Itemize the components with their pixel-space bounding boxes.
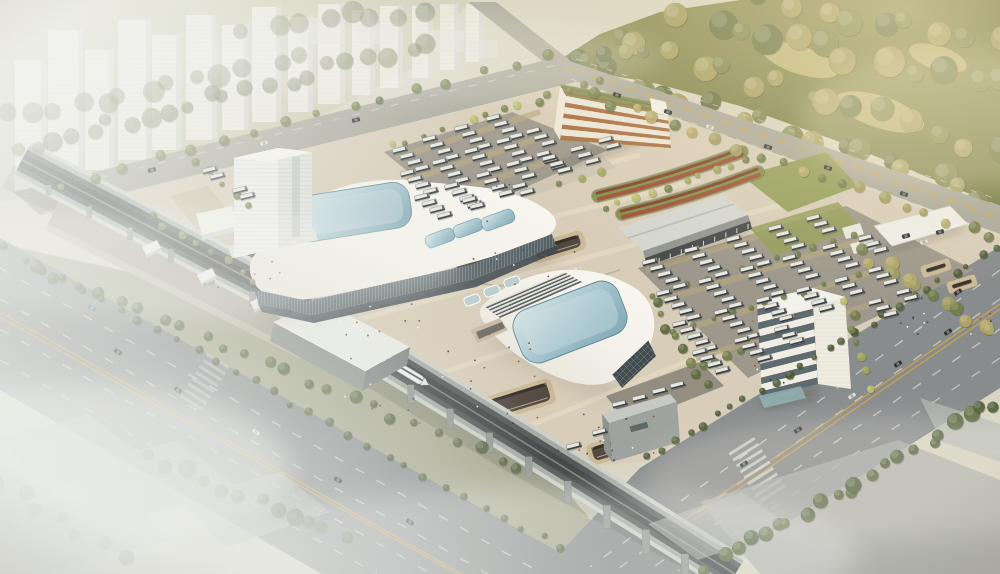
atmosphere xyxy=(0,0,1000,574)
architectural-rendering xyxy=(0,0,1000,574)
rendering-canvas xyxy=(0,0,1000,574)
vignette xyxy=(0,0,1000,574)
